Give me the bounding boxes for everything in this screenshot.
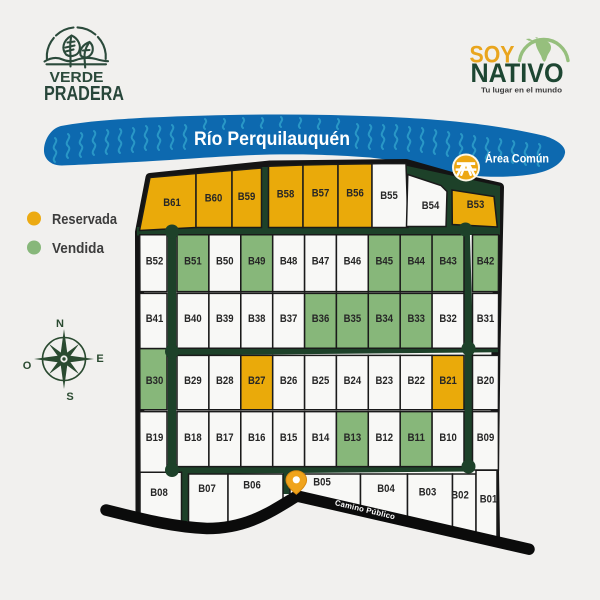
svg-text:B29: B29	[184, 375, 202, 387]
svg-text:B37: B37	[280, 313, 298, 325]
svg-text:B35: B35	[344, 313, 362, 325]
svg-text:B49: B49	[248, 256, 266, 268]
svg-text:B04: B04	[377, 483, 395, 495]
svg-text:Tu lugar en el mundo: Tu lugar en el mundo	[481, 88, 562, 95]
svg-text:B46: B46	[344, 256, 362, 268]
svg-text:B34: B34	[376, 313, 394, 325]
svg-text:B60: B60	[205, 193, 223, 205]
svg-text:B03: B03	[419, 487, 437, 499]
svg-text:B12: B12	[376, 432, 394, 444]
svg-text:B50: B50	[216, 256, 234, 268]
svg-text:B57: B57	[312, 188, 330, 200]
svg-text:B15: B15	[280, 432, 298, 444]
svg-text:B47: B47	[312, 256, 330, 268]
svg-text:B07: B07	[198, 483, 216, 495]
svg-text:B16: B16	[248, 432, 266, 444]
svg-text:B38: B38	[248, 313, 266, 325]
svg-text:B55: B55	[380, 190, 398, 202]
svg-text:PRADERA: PRADERA	[44, 83, 124, 105]
svg-text:B56: B56	[346, 188, 364, 200]
svg-text:B36: B36	[312, 313, 330, 325]
svg-text:O: O	[23, 360, 32, 372]
svg-text:B31: B31	[477, 313, 495, 325]
svg-text:B24: B24	[344, 375, 362, 387]
svg-text:B54: B54	[422, 200, 440, 212]
svg-text:B28: B28	[216, 375, 234, 387]
svg-text:B13: B13	[344, 432, 362, 444]
svg-text:B45: B45	[376, 256, 394, 268]
svg-text:B02: B02	[451, 490, 469, 502]
svg-text:B22: B22	[407, 375, 425, 387]
svg-text:B30: B30	[146, 375, 164, 387]
svg-text:B41: B41	[146, 313, 164, 325]
svg-text:B17: B17	[216, 432, 234, 444]
svg-text:B59: B59	[238, 191, 256, 203]
svg-text:B27: B27	[248, 375, 266, 387]
svg-text:NATIVO: NATIVO	[471, 58, 564, 88]
svg-text:B52: B52	[146, 256, 164, 268]
svg-text:B08: B08	[150, 487, 168, 499]
svg-text:B09: B09	[477, 432, 495, 444]
svg-text:B51: B51	[184, 256, 202, 268]
svg-text:B25: B25	[312, 375, 330, 387]
svg-text:B39: B39	[216, 313, 234, 325]
svg-text:B33: B33	[407, 313, 425, 325]
svg-text:B48: B48	[280, 256, 298, 268]
svg-text:B14: B14	[312, 432, 330, 444]
svg-text:B11: B11	[407, 432, 425, 444]
svg-text:B43: B43	[439, 256, 457, 268]
svg-text:B18: B18	[184, 432, 202, 444]
svg-text:B21: B21	[439, 375, 457, 387]
svg-text:B42: B42	[477, 256, 495, 268]
svg-text:B23: B23	[376, 375, 394, 387]
svg-text:B40: B40	[184, 313, 202, 325]
svg-text:S: S	[66, 391, 73, 403]
svg-text:Reservada: Reservada	[52, 212, 118, 228]
svg-text:B44: B44	[407, 256, 425, 268]
svg-text:N: N	[56, 318, 64, 330]
svg-text:Vendida: Vendida	[52, 241, 105, 257]
svg-text:B19: B19	[146, 432, 164, 444]
svg-text:B53: B53	[467, 199, 485, 211]
svg-text:Río Perquilauquén: Río Perquilauquén	[194, 129, 350, 150]
svg-text:E: E	[96, 353, 103, 365]
svg-text:B01: B01	[480, 494, 498, 506]
svg-text:B61: B61	[163, 197, 181, 209]
svg-text:B10: B10	[439, 432, 457, 444]
svg-text:B32: B32	[439, 313, 457, 325]
svg-text:B05: B05	[313, 477, 331, 489]
svg-text:B20: B20	[477, 375, 495, 387]
svg-text:Área Común: Área Común	[485, 153, 549, 166]
svg-text:B06: B06	[243, 480, 261, 492]
svg-text:B26: B26	[280, 375, 298, 387]
svg-text:B58: B58	[277, 189, 295, 201]
